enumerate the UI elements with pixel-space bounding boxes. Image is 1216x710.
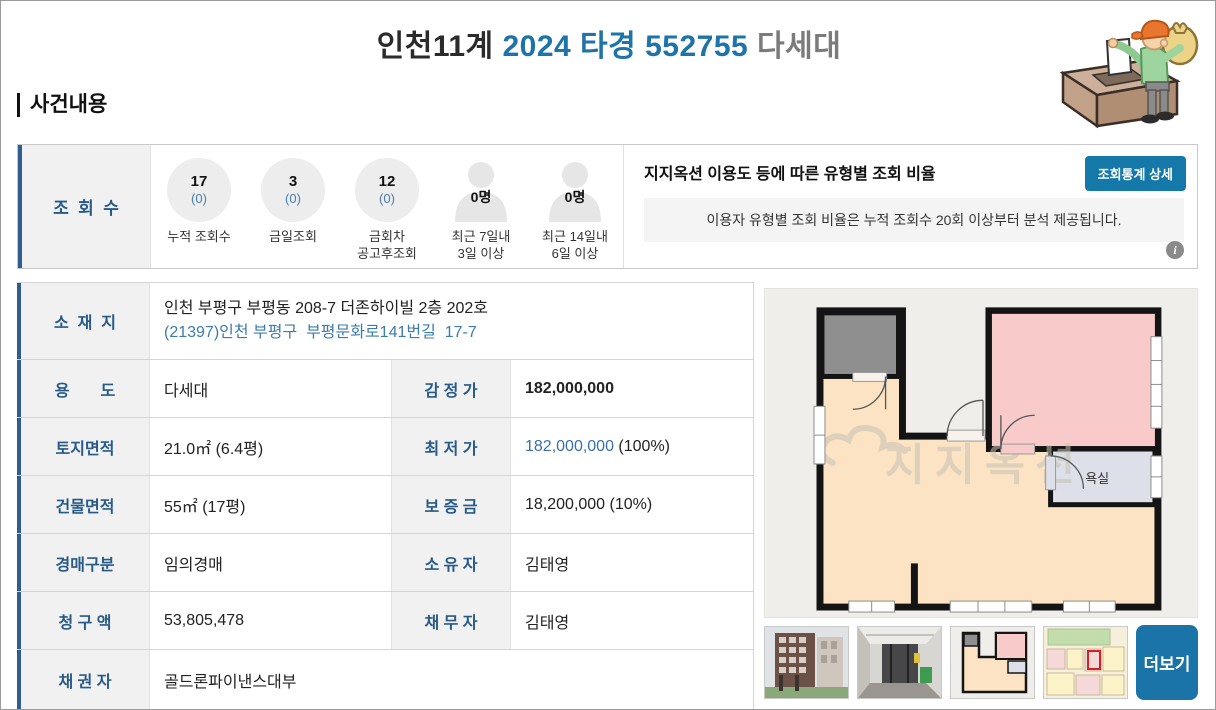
min-price-ratio: (100%) [614, 438, 670, 456]
info-icon[interactable]: i [1166, 241, 1184, 259]
address-road-link[interactable]: (21397)인천 부평구 부평문화로141번길 17-7 [164, 321, 753, 345]
section-title: 사건내용 [17, 93, 107, 117]
table-row-auctiontype-owner: 경매구분 임의경매 소 유 자 김태영 [17, 534, 753, 592]
person-icon: 0명 [543, 158, 607, 222]
creditor-label: 채 권 자 [17, 650, 150, 710]
more-button[interactable]: 더보기 [1136, 625, 1198, 700]
appraisal-value: 182,000,000 [511, 360, 753, 417]
table-row-building-deposit: 건물면적 55㎡ (17평) 보 증 금 18,200,000 (10%) [17, 476, 753, 534]
stat-circle: 17 (0) [167, 158, 231, 222]
person-icon: 0명 [449, 158, 513, 222]
entrance-photo-thumbnail[interactable] [857, 626, 942, 699]
view-stats-detail-button[interactable]: 조회통계 상세 [1085, 156, 1186, 191]
address-line1: 인천 부평구 부평동 208-7 더존하이빌 2층 202호 [164, 297, 753, 321]
table-row-usage-appraisal: 용 도 다세대 감 정 가 182,000,000 [17, 360, 753, 418]
media-panel: 지지옥션 [764, 288, 1198, 700]
debtor-label: 채 무 자 [392, 592, 511, 649]
case-detail-page: 인천11계 2024 타경 552755 다세대 [0, 0, 1216, 710]
land-area-value: 21.0㎡ (6.4평) [150, 418, 392, 475]
thumbnail-strip: 더보기 [764, 626, 1198, 700]
owner-value: 김태영 [511, 534, 753, 591]
creditor-value: 골드론파이낸스대부 [150, 650, 753, 710]
property-category: 다세대 [757, 30, 841, 63]
usage-label: 용 도 [17, 360, 150, 417]
claim-amount-value: 53,805,478 [150, 592, 392, 649]
bathroom-label: 욕실 [1085, 471, 1109, 486]
min-price-number: 182,000,000 [525, 438, 614, 456]
owner-label: 소 유 자 [392, 534, 511, 591]
stat-round-views: 12 (0) 금회차 공고후조회 [341, 158, 433, 268]
auction-type-value: 임의경매 [150, 534, 392, 591]
table-row-claim-debtor: 청 구 액 53,805,478 채 무 자 김태영 [17, 592, 753, 650]
deposit-value: 18,200,000 (10%) [511, 476, 753, 533]
building-photo-thumbnail[interactable] [764, 626, 849, 699]
court-name: 인천11계 [377, 30, 494, 63]
appraisal-label: 감 정 가 [392, 360, 511, 417]
stat-recent-14days: 0명 최근 14일내 6일 이상 [529, 158, 621, 268]
address-value: 인천 부평구 부평동 208-7 더존하이빌 2층 202호 (21397)인천… [150, 283, 753, 359]
stat-circle: 12 (0) [355, 158, 419, 222]
debtor-value: 김태영 [511, 592, 753, 649]
page-title: 인천11계 2024 타경 552755 다세대 [1, 21, 1216, 65]
floorplan-thumbnail[interactable] [950, 626, 1035, 699]
bid-box-cartoon-icon [1049, 5, 1201, 131]
land-area-label: 토지면적 [17, 418, 150, 475]
min-price-value: 182,000,000 (100%) [511, 418, 753, 475]
table-row-land-minprice: 토지면적 21.0㎡ (6.4평) 최 저 가 182,000,000 (100… [17, 418, 753, 476]
table-row-creditor: 채 권 자 골드론파이낸스대부 [17, 650, 753, 710]
min-price-label: 최 저 가 [392, 418, 511, 475]
view-count-label: 조 회 수 [18, 145, 151, 268]
building-area-label: 건물면적 [17, 476, 150, 533]
auction-type-label: 경매구분 [17, 534, 150, 591]
floorplan-image[interactable]: 지지옥션 [764, 288, 1198, 618]
case-number: 2024 타경 552755 [502, 30, 748, 63]
view-stats-block: 조 회 수 17 (0) 누적 조회수 3 (0) 금일조회 12 (0 [17, 144, 1198, 269]
cadastral-map-thumbnail[interactable] [1043, 626, 1128, 699]
building-area-value: 55㎡ (17평) [150, 476, 392, 533]
deposit-label: 보 증 금 [392, 476, 511, 533]
view-count-items: 17 (0) 누적 조회수 3 (0) 금일조회 12 (0) 금회차 공고후조… [151, 145, 624, 268]
claim-amount-label: 청 구 액 [17, 592, 150, 649]
address-label: 소 재 지 [17, 283, 150, 359]
stat-today-views: 3 (0) 금일조회 [247, 158, 339, 268]
stat-recent-7days: 0명 최근 7일내 3일 이상 [435, 158, 527, 268]
table-row-address: 소 재 지 인천 부평구 부평동 208-7 더존하이빌 2층 202호 (21… [17, 283, 753, 360]
auction-mascot-illustration [1049, 5, 1201, 131]
stat-circle: 3 (0) [261, 158, 325, 222]
case-detail-table: 소 재 지 인천 부평구 부평동 208-7 더존하이빌 2층 202호 (21… [17, 282, 754, 710]
view-ratio-notice: 이용자 유형별 조회 비율은 누적 조회수 20회 이상부터 분석 제공됩니다. [644, 198, 1184, 242]
stat-cumulative-views: 17 (0) 누적 조회수 [153, 158, 245, 268]
usage-value: 다세대 [150, 360, 392, 417]
view-ratio-panel: 지지옥션 이용도 등에 따른 유형별 조회 비율 조회통계 상세 이용자 유형별… [624, 145, 1198, 268]
